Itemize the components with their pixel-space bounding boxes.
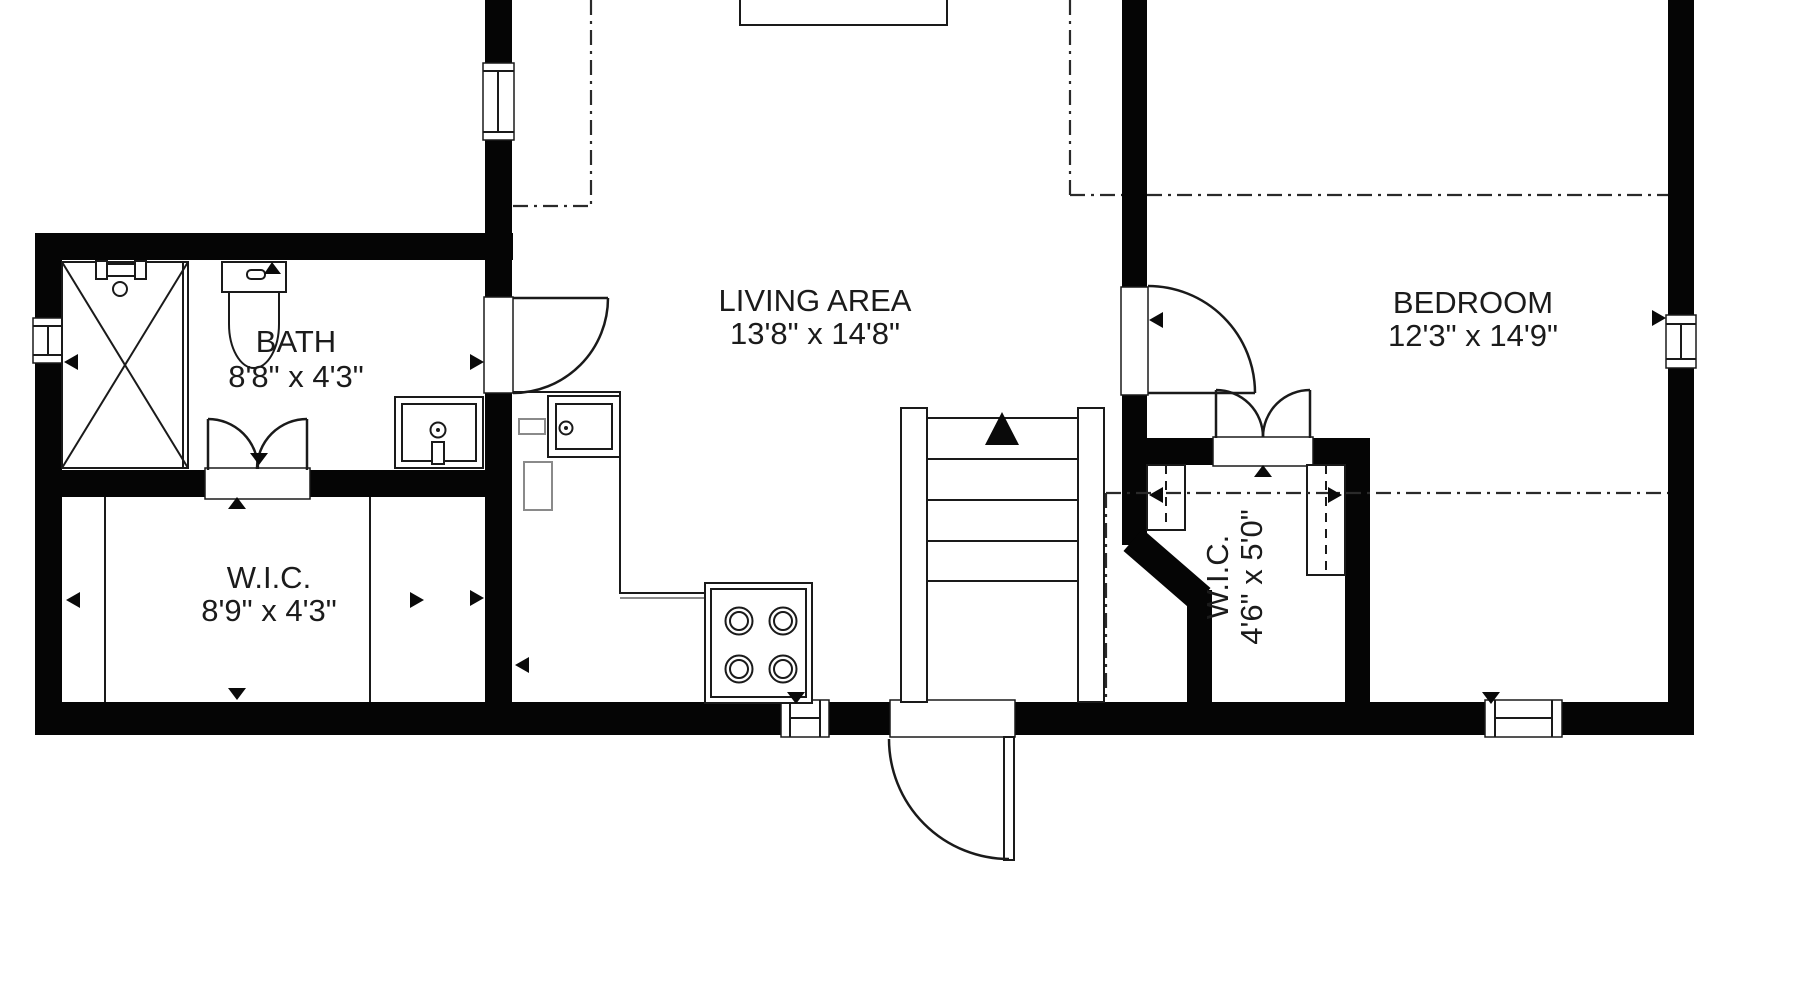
wall-wic2-top-right [1313,438,1370,465]
window-bedroom-right-wall [1666,315,1696,368]
marker-wic1-left-icon [66,592,80,608]
windows [33,63,1696,737]
marker-wic1-bottom-icon [228,688,246,700]
door-double-wic2 [1213,390,1313,466]
door-bath-to-kitchen [484,297,608,393]
stove [705,583,812,703]
door-entry [889,700,1015,860]
label-bedroom-dims: 12'3" x 14'9" [1388,318,1558,353]
window-bath-left-wall [33,318,64,363]
wall-bottom-outer [35,702,1694,735]
window-bottom-bedroom [1485,700,1562,737]
label-wic2: W.I.C. [1200,535,1235,619]
label-bath-dims: 8'8" x 4'3" [228,359,364,394]
label-bath: BATH [256,324,336,359]
wall-wic2-right [1345,465,1370,702]
label-wic2-dims: 4'6" x 5'0" [1234,509,1269,645]
marker-wic1-right-icon [410,592,424,608]
stairs [901,408,1104,702]
wall-left-outer [35,233,62,735]
marker-bath-wic-door-down-icon [250,453,268,465]
wall-living-bedroom-lower [1122,395,1147,545]
marker-bath-door-icon [470,354,484,370]
bath-sink [395,397,483,468]
marker-wic2-door-icon [1254,465,1272,477]
wall-living-bedroom-upper [1122,0,1147,287]
label-wic1-dims: 8'9" x 4'3" [201,593,337,628]
wall-bath-top [35,233,513,260]
marker-bedroom-window-icon [1652,310,1666,326]
window-kitchen-left-wall [483,63,514,140]
marker-kitchen-right-icon [515,657,529,673]
wall-kitchen-left-upper [485,0,512,63]
door-bedroom [1121,286,1255,395]
kitchen-island [740,0,947,25]
label-bedroom: BEDROOM [1393,285,1553,320]
window-bottom-kitchen [781,700,829,737]
wall-kitchen-left-mid [485,140,512,297]
wall-wic2-top-left [1147,438,1213,465]
shower [62,261,188,468]
floor-plan: LIVING AREA 13'8" x 14'8" BEDROOM 12'3" … [0,0,1800,1000]
closet-rod-left [1147,465,1185,530]
label-living-area: LIVING AREA [719,283,912,318]
wall-kitchen-left-lower [485,393,512,702]
wall-bath-wic-divider-right [310,470,485,497]
wall-bath-wic-divider-left [62,470,205,497]
marker-kitchen-left-icon [470,590,484,606]
label-living-area-dims: 13'8" x 14'8" [730,316,900,351]
label-wic1: W.I.C. [227,560,311,595]
marker-bedroom-door-icon [1149,312,1163,328]
stairs-up-arrow-icon [985,412,1019,445]
closet-rod-right [1307,465,1345,575]
kitchen-sink [519,396,620,457]
